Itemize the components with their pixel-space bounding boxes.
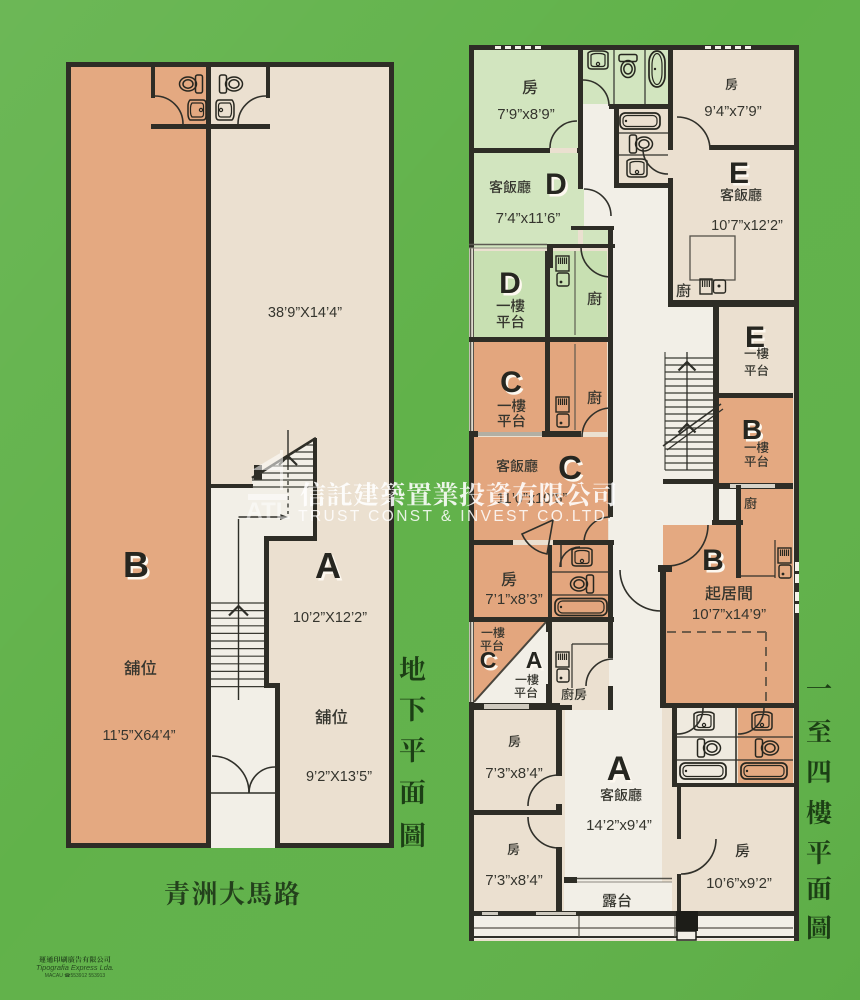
svg-text:B: B <box>702 544 724 577</box>
svg-text:10’7”x14’9”: 10’7”x14’9” <box>692 606 766 623</box>
svg-text:11’5”X64’4”: 11’5”X64’4” <box>102 728 175 744</box>
svg-text:7’3”x8’4”: 7’3”x8’4” <box>485 872 543 889</box>
svg-text:D: D <box>545 168 567 201</box>
svg-text:7’4”x11’6”: 7’4”x11’6” <box>496 210 561 227</box>
svg-text:10’6”x9’2”: 10’6”x9’2” <box>706 875 772 892</box>
svg-text:C: C <box>480 647 497 673</box>
svg-text:A: A <box>526 647 543 673</box>
svg-text:14’2”x9’4”: 14’2”x9’4” <box>586 817 652 834</box>
svg-text:D: D <box>499 267 521 300</box>
svg-text:C: C <box>500 366 522 399</box>
svg-text:9’2”X13’5”: 9’2”X13’5” <box>306 769 372 785</box>
svg-text:E: E <box>729 157 749 190</box>
svg-text:7’9”x8’9”: 7’9”x8’9” <box>497 106 555 123</box>
svg-text:ATL: ATL <box>246 498 291 525</box>
svg-text:10’7”x12’2”: 10’7”x12’2” <box>711 218 783 234</box>
svg-text:A: A <box>315 545 341 586</box>
svg-text:A: A <box>607 750 632 788</box>
svg-text:TRUST CONST & INVEST CO.LTD.: TRUST CONST & INVEST CO.LTD. <box>298 508 614 525</box>
svg-text:7’3”x8’4”: 7’3”x8’4” <box>485 765 543 782</box>
svg-text:B: B <box>123 544 149 585</box>
svg-text:MACAU ☎553912 553913: MACAU ☎553912 553913 <box>45 973 106 979</box>
svg-text:7’1”x8’3”: 7’1”x8’3” <box>485 591 543 608</box>
svg-text:B: B <box>742 414 762 445</box>
svg-text:9’4”x7’9”: 9’4”x7’9” <box>704 103 762 120</box>
svg-text:C: C <box>558 449 582 486</box>
svg-text:38’9”X14’4”: 38’9”X14’4” <box>268 305 342 321</box>
svg-text:Tipografia Express Lda.: Tipografia Express Lda. <box>36 963 114 972</box>
svg-text:10’2”X12’2”: 10’2”X12’2” <box>293 610 367 626</box>
